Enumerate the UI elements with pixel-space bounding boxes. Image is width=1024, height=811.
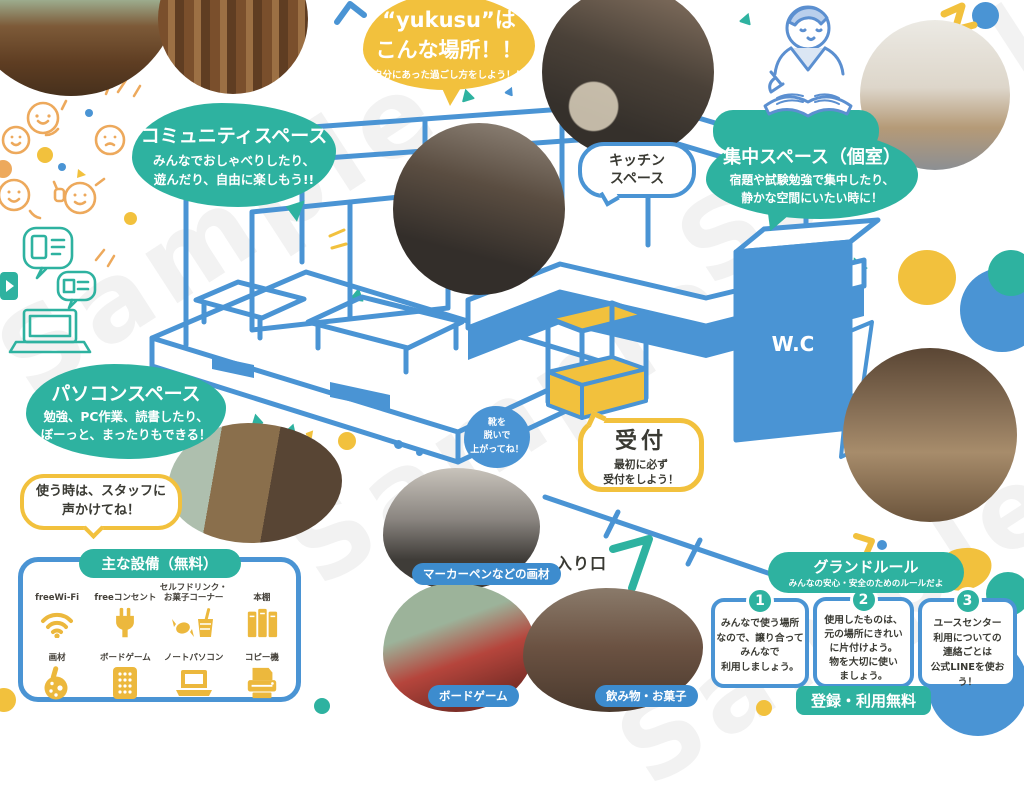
art-supplies-icon — [40, 667, 74, 699]
ground-rules-subtitle: みんなの安心・安全のためのルールだよ — [774, 577, 958, 589]
focus-space-callout: 集中スペース（個室） 宿題や試験勉強で集中したり、 静かな空間にいたい時に！ — [706, 131, 918, 219]
copier-icon — [244, 667, 280, 699]
equipment-item-label: 本棚 — [253, 582, 270, 604]
entrance-arrow — [613, 539, 649, 588]
pc-space-callout: パソコンスペース 勉強、PC作業、読書したり、 ぼーっと、まったりもできる！ — [26, 364, 226, 459]
kitchen-space-title: キッチン スペース — [609, 152, 665, 188]
markers-photo-label: マーカーペンなどの画材 — [412, 563, 561, 585]
wifi-icon — [39, 607, 75, 639]
equipment-item-label: セルフドリンク・ お菓子コーナー — [160, 582, 228, 604]
rule-text: ユースセンター 利用についての 連絡ごとは 公式LINEを使おう！ — [922, 617, 1013, 690]
wc-label: W.C — [752, 332, 834, 356]
equipment-title: 主な設備（無料） — [79, 549, 241, 578]
board-game-photo-label: ボードゲーム — [428, 685, 519, 707]
rule-card-2: 2 使用したものは、 元の場所にきれい に片付けよう。 物を大切に使い ましょう… — [813, 597, 914, 688]
equipment-item: ボードゲーム — [91, 642, 159, 699]
rule-text: みんなで使う場所 なので、譲り合って みんなで 利用しましょう。 — [715, 617, 805, 676]
shoes-off-text: 靴を 脱いで 上がってね！ — [470, 417, 524, 456]
equipment-grid: freeWi-Fi freeコンセント セルフドリンク・ お菓子コーナー 本棚 … — [23, 562, 296, 702]
rule-number: 3 — [954, 587, 982, 615]
rule-card-1: 1 みんなで使う場所 なので、譲り合って みんなで 利用しましょう。 — [711, 598, 809, 688]
title-subtitle: -自分にあった過ごし方をしよう！！- — [363, 67, 535, 81]
ground-rules-header: グランドルール みんなの安心・安全のためのルールだよ — [768, 552, 964, 593]
power-plug-icon — [109, 607, 141, 639]
photo-workshop — [843, 348, 1017, 522]
community-space-title: コミュニティスペース — [141, 121, 328, 148]
equipment-item: freeコンセント — [91, 582, 159, 639]
drink-snack-icon — [172, 607, 216, 639]
ask-staff-text: 使う時は、スタッフに 声かけてね！ — [36, 483, 166, 521]
rule-number: 1 — [746, 587, 774, 615]
community-space-desc: みんなでおしゃべりしたり、 遊んだり、自由に楽しもう!! — [153, 152, 315, 188]
equipment-item: ノートパソコン — [160, 642, 228, 699]
equipment-item-label: コピー機 — [245, 642, 279, 664]
kitchen-space-callout: キッチン スペース — [578, 142, 696, 198]
equipment-item: コピー機 — [228, 642, 296, 699]
equipment-item-label: freeコンセント — [94, 582, 156, 604]
yukusu-flyer: { "watermark": "Sample", "title_bubble":… — [0, 0, 1024, 712]
equipment-item: 画材 — [23, 642, 91, 699]
reception-title: 受付 — [615, 423, 667, 455]
focus-space-desc: 宿題や試験勉強で集中したり、 静かな空間にいたい時に！ — [730, 172, 895, 206]
pc-space-desc: 勉強、PC作業、読書したり、 ぼーっと、まったりもできる！ — [41, 409, 211, 445]
equipment-item-label: 画材 — [49, 642, 66, 664]
equipment-box: 主な設備（無料） freeWi-Fi freeコンセント セルフドリンク・ お菓… — [18, 557, 301, 702]
focus-space-title: 集中スペース（個室） — [723, 143, 901, 169]
equipment-item-label: ボードゲーム — [100, 642, 151, 664]
equipment-item: 本棚 — [228, 582, 296, 639]
equipment-item-label: freeWi-Fi — [35, 582, 79, 604]
shoes-off-callout: 靴を 脱いで 上がってね！ — [464, 406, 530, 468]
bubble-tail — [764, 213, 786, 234]
equipment-item-label: ノートパソコン — [164, 642, 224, 664]
studying-boy-doodle — [705, 0, 885, 152]
title-line1: “yukusu”は — [363, 4, 535, 34]
ask-staff-callout: 使う時は、スタッフに 声かけてね！ — [20, 474, 182, 530]
reception-callout: 受付 最初に必ず 受付をしよう！ — [578, 418, 704, 492]
laptop-media-doodle — [0, 220, 110, 360]
community-space-callout: コミュニティスペース みんなでおしゃべりしたり、 遊んだり、自由に楽しもう!! — [132, 103, 336, 207]
snacks-photo-label: 飲み物・お菓子 — [595, 685, 698, 707]
bubble-tail — [441, 86, 462, 106]
equipment-item: freeWi-Fi — [23, 582, 91, 639]
title-bubble: “yukusu”は こんな場所！！ -自分にあった過ごし方をしよう！！- — [363, 0, 535, 90]
pc-space-title: パソコンスペース — [51, 379, 200, 406]
bookshelf-icon — [245, 607, 279, 639]
title-line2: こんな場所！！ — [363, 34, 535, 64]
equipment-item: セルフドリンク・ お菓子コーナー — [160, 582, 228, 639]
board-game-icon — [111, 667, 139, 699]
photo-people-at-table — [393, 123, 565, 295]
free-registration-badge: 登録・利用無料 — [796, 686, 931, 715]
reception-desc: 最初に必ず 受付をしよう！ — [603, 457, 679, 487]
laptop-icon — [174, 667, 214, 699]
ground-rules-title: グランドルール — [774, 556, 958, 577]
entrance-label: 入り口 — [556, 550, 607, 574]
rule-card-3: 3 ユースセンター 利用についての 連絡ごとは 公式LINEを使おう！ — [918, 598, 1017, 688]
rule-text: 使用したものは、 元の場所にきれい に片付けよう。 物を大切に使い ましょう。 — [817, 614, 910, 684]
